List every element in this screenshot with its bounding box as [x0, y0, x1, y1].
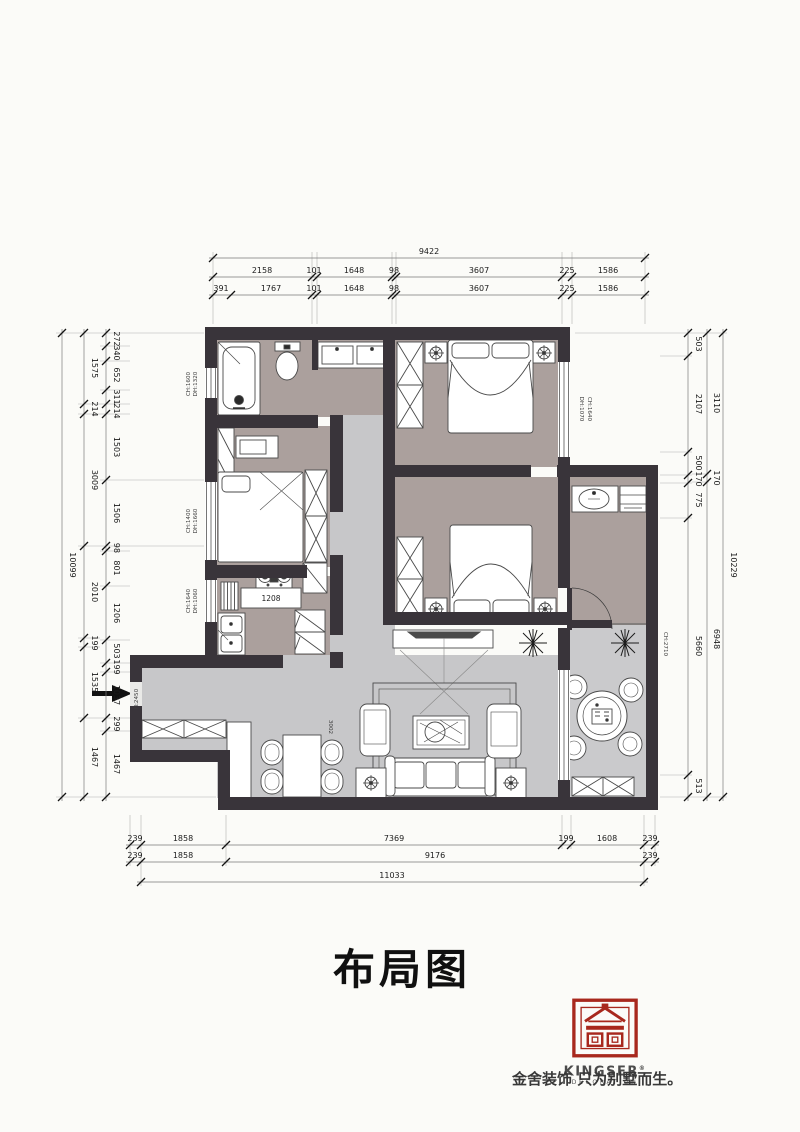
sofa — [385, 756, 495, 796]
bedroom2-bed — [218, 472, 303, 562]
dim-label: 801 — [112, 560, 121, 575]
dim-label: 1858 — [173, 834, 193, 843]
counter-dim-label: 1208 — [261, 594, 280, 603]
dim-label: 11033 — [379, 871, 404, 880]
dim-label: 1767 — [261, 284, 281, 293]
dim-label: 500 — [694, 455, 703, 470]
dimension-text-right: 503 2107 500 170 775 5660 513 3110 170 6… — [694, 336, 738, 793]
dim-label: 340 — [112, 345, 121, 360]
bedroom2-desk — [236, 436, 278, 458]
dim-label: 9176 — [425, 851, 445, 860]
dim-label: 3607 — [469, 284, 489, 293]
kitchen-sink — [218, 613, 245, 655]
radiator-icon — [221, 582, 238, 610]
dim-label: 199 — [112, 659, 121, 674]
dim-label: 225 — [559, 284, 574, 293]
dim-label: 10099 — [68, 552, 77, 577]
dim-label: 101 — [306, 284, 321, 293]
dim-label: 1858 — [173, 851, 193, 860]
dim-label: 199 — [90, 635, 99, 650]
dim-label: 503 — [112, 643, 121, 658]
kingser-emblem-icon — [571, 998, 639, 1058]
floor-plan-page: 9422 2158 101 1648 98 3607 225 1586 391 … — [0, 0, 800, 1132]
dimension-text-top: 9422 2158 101 1648 98 3607 225 1586 391 … — [213, 247, 618, 293]
tall-cabinet — [227, 722, 251, 798]
master-wardrobe — [397, 342, 423, 428]
dim-label: 199 — [558, 834, 573, 843]
armchair-left — [360, 704, 390, 756]
window-height-label: CH:1640 — [586, 397, 592, 422]
dim-label: 311 — [112, 389, 121, 404]
window-height-label: CH:1600 — [186, 371, 192, 396]
dim-label: 1503 — [112, 437, 121, 457]
dim-label: 5660 — [694, 636, 703, 656]
dining-chair — [261, 740, 283, 765]
dim-label: 2107 — [694, 394, 703, 414]
dim-label: 1037 — [112, 685, 121, 705]
dim-label: 170 — [712, 470, 721, 485]
dim-label: 3607 — [469, 266, 489, 275]
toilet — [275, 342, 300, 380]
window-height-label: DH:1320 — [193, 371, 199, 396]
entry-height-label: H:2450 — [134, 688, 140, 709]
dim-label: 775 — [694, 492, 703, 507]
dim-label: 652 — [112, 367, 121, 382]
dim-label: 9422 — [419, 247, 439, 256]
dim-label: 10229 — [729, 552, 738, 577]
window-height-label: CH:1400 — [186, 508, 192, 533]
dim-label: 225 — [559, 266, 574, 275]
balcony-window — [558, 670, 570, 780]
balcony-chair — [618, 732, 642, 756]
ceiling-height-label: CH:2710 — [662, 632, 668, 657]
bedroom2-window — [205, 482, 217, 560]
dim-label: 503 — [694, 336, 703, 351]
dimension-text-left: 10099 1575 214 3009 2010 199 1535 1467 2… — [68, 331, 121, 774]
window-height-label: DH:1660 — [193, 508, 199, 533]
dim-label: 513 — [694, 778, 703, 793]
bedroom3-bed — [450, 525, 532, 620]
dim-label: 1506 — [112, 503, 121, 523]
dim-label: 1586 — [598, 284, 618, 293]
dim-label: 239 — [642, 851, 657, 860]
bathtub — [218, 342, 260, 415]
dining-chair — [321, 740, 343, 765]
dim-label: 2010 — [90, 582, 99, 602]
window-height-label: CH:1640 — [186, 588, 192, 613]
dim-label: 7369 — [384, 834, 404, 843]
dim-label: 6948 — [712, 629, 721, 649]
dim-label: 1575 — [90, 358, 99, 378]
plant-icon — [611, 629, 639, 657]
dim-label: 1648 — [344, 284, 364, 293]
dim-label: 3009 — [90, 470, 99, 490]
dimension-text-bottom: 239 1858 7369 199 1608 239 239 1858 9176… — [127, 834, 657, 880]
shoe-cabinet — [142, 720, 226, 738]
balcony-storage — [572, 777, 634, 796]
kitchen-cabinet-corner — [295, 610, 325, 654]
dim-label: 1586 — [598, 266, 618, 275]
dim-label: 101 — [306, 266, 321, 275]
balcony-table — [577, 691, 627, 741]
dim-label: 170 — [694, 471, 703, 486]
coffee-table — [413, 716, 469, 749]
dim-label: 1467 — [112, 754, 121, 774]
vanity-double-sink — [318, 342, 392, 368]
dining-chair — [321, 769, 343, 794]
dining-table — [283, 735, 321, 797]
dim-label: 391 — [213, 284, 228, 293]
dim-label: 272 — [112, 331, 121, 346]
armchair-right — [487, 704, 521, 758]
dim-label: 1206 — [112, 603, 121, 623]
bedroom2-wardrobe — [305, 470, 327, 562]
dim-label: 3110 — [712, 393, 721, 413]
dim-label: 1535 — [90, 672, 99, 692]
master-bed — [448, 340, 533, 433]
dim-label: 299 — [112, 716, 121, 731]
drawing-title: 布局图 — [322, 936, 482, 997]
master-window — [558, 362, 570, 457]
dim-label: 98 — [389, 284, 399, 293]
suite-cabinet — [620, 486, 646, 512]
window-height-label: DH:1060 — [193, 588, 199, 613]
dim-label: 1608 — [597, 834, 617, 843]
dim-label: 214 — [112, 403, 121, 418]
bedroom3-wardrobe — [397, 537, 423, 621]
dim-label: 239 — [127, 851, 142, 860]
bath-window — [205, 368, 217, 398]
dim-label: 239 — [642, 834, 657, 843]
window-height-label: DH:1070 — [578, 397, 584, 422]
dim-label: 1467 — [90, 747, 99, 767]
dim-label: 1648 — [344, 266, 364, 275]
suite-sink — [572, 486, 618, 512]
brand-tagline: 金舍装饰 只为别墅而生。 — [512, 1068, 682, 1089]
dining-chair — [261, 769, 283, 794]
dim-label: 98 — [112, 543, 121, 553]
dim-label: 2158 — [252, 266, 272, 275]
dining-dim-label: 3002 — [327, 720, 333, 734]
dim-label: 214 — [90, 401, 99, 416]
dim-label: 239 — [127, 834, 142, 843]
kitchen-window — [205, 580, 217, 622]
dim-label: 98 — [389, 266, 399, 275]
plant-icon — [519, 629, 547, 657]
balcony-chair — [619, 678, 643, 702]
